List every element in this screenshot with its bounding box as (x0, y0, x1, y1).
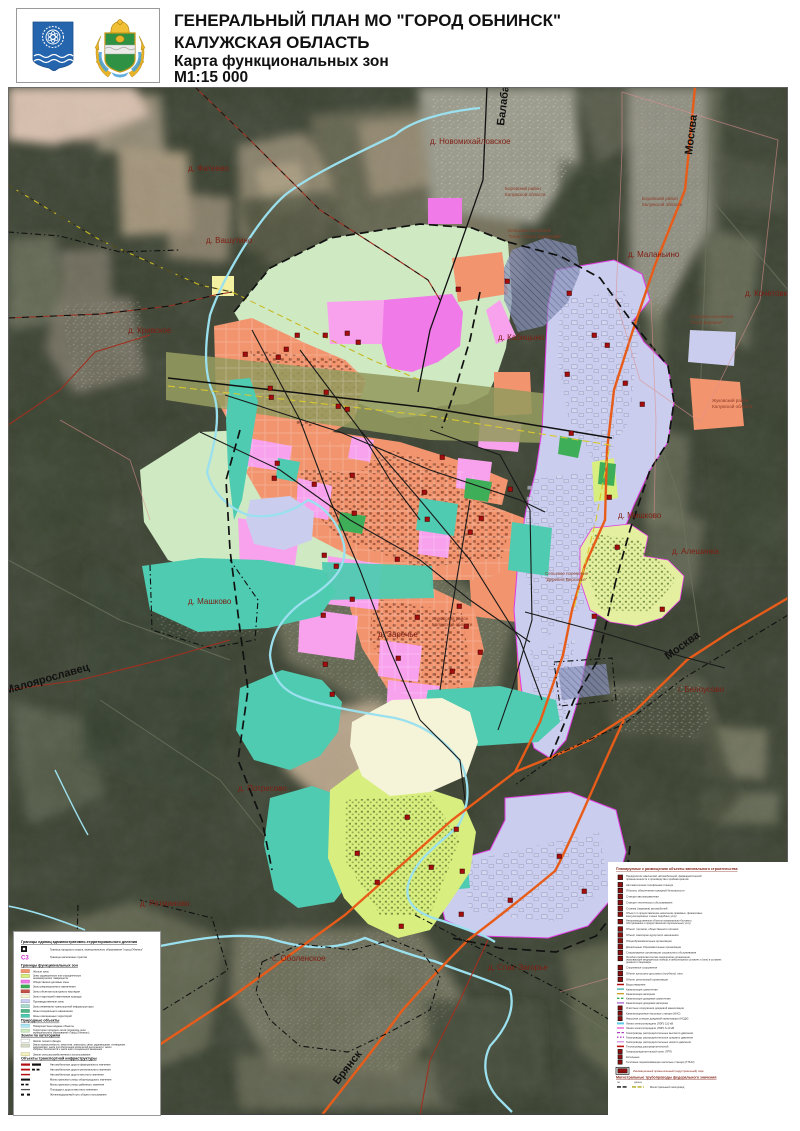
svg-text:Границы функциональных зон: Границы функциональных зон (21, 964, 78, 968)
svg-text:Объект культурно-досугового (к: Объект культурно-досугового (клубного) т… (626, 972, 683, 976)
svg-text:Поверхностные водные объекты: Поверхностные водные объекты (33, 1024, 74, 1028)
svg-text:Очистные сооружения дождевой к: Очистные сооружения дождевой канализации (626, 1006, 684, 1010)
svg-text:Теплопровод распределительный: Теплопровод распределительный (626, 1045, 669, 1049)
svg-text:Границы населенных пунктов: Границы населенных пунктов (50, 955, 87, 959)
svg-text:Канализация напорная: Канализация напорная (626, 992, 655, 996)
svg-text:д. Алешинка: д. Алешинка (672, 547, 720, 556)
svg-text:Жуковский район: Жуковский район (712, 397, 749, 403)
svg-text:Котельные: Котельные (626, 1055, 640, 1059)
svg-text:Границы единиц административно: Границы единиц административно-территори… (21, 940, 137, 944)
svg-text:Жилые зоны: Жилые зоны (33, 969, 49, 973)
svg-text:данные: данные (634, 1082, 643, 1084)
svg-text:д. Кривское: д. Кривское (128, 326, 172, 335)
svg-text:некоммерческих товариществ: некоммерческих товариществ (33, 977, 69, 980)
svg-text:Боровский район: Боровский район (505, 185, 541, 191)
svg-text:д. Новомихайловское: д. Новомихайловское (430, 137, 511, 146)
svg-text:Зоны территорий памятников при: Зоны территорий памятников природы (33, 995, 82, 999)
svg-text:промышленности и производства: промышленности и производства стройматер… (626, 877, 689, 881)
svg-text:Линии электропередачи (ЛЭП) 11: Линии электропередачи (ЛЭП) 110 кВ (626, 1022, 673, 1026)
svg-text:"Село Ворсино": "Село Ворсино" (690, 320, 723, 325)
svg-text:Планируемые к размещению объек: Планируемые к размещению объекты капитал… (616, 867, 738, 871)
svg-text:Калужской области: Калужской области (505, 191, 546, 197)
svg-text:Объект религиозной организации: Объект религиозной организации (626, 977, 668, 981)
svg-text:Зоны озелененных территорий: Зоны озелененных территорий (33, 1014, 72, 1018)
svg-text:д. Машково: д. Машково (188, 597, 232, 606)
svg-text:Объект санаторно-курортного на: Объект санаторно-курортного назначения (626, 933, 679, 937)
svg-text:д. Заречье: д. Заречье (378, 630, 418, 639)
svg-text:Станция автозаправочная: Станция автозаправочная (626, 895, 659, 899)
svg-text:Граница городского округа, мун: Граница городского округа, муниципальног… (50, 948, 143, 952)
svg-text:Канализационные насосные станц: Канализационные насосные станции (КНС) (626, 1011, 681, 1015)
svg-text:Зоны рекреационного назначения: Зоны рекреационного назначения (33, 985, 76, 989)
svg-text:Автомобильные дороги региональ: Автомобильные дороги регионального значе… (50, 1068, 111, 1072)
svg-text:д. Фатеево: д. Фатеево (188, 164, 229, 173)
svg-text:Зоны инженерно-транспортной ин: Зоны инженерно-транспортной инфраструкту… (33, 1004, 94, 1008)
svg-text:Газопроводы распределительные: Газопроводы распределительные среднего д… (626, 1035, 693, 1039)
svg-text:с. Оболенское: с. Оболенское (272, 954, 326, 963)
svg-text:Автомобильные дороги федеральн: Автомобильные дороги федерального значен… (50, 1063, 111, 1067)
svg-text:Магистральные улицы районного: Магистральные улицы районного значения (50, 1083, 105, 1087)
svg-text:Дошкольные образовательные орг: Дошкольные образовательные организации (626, 945, 682, 949)
svg-text:обслуживания и предоставления: обслуживания и предоставления персональн… (626, 921, 691, 925)
svg-text:Железнодорожный путь общего по: Железнодорожный путь общего пользования (50, 1093, 107, 1097)
svg-text:Газораспределительный пункт (Г: Газораспределительный пункт (ГРП) (626, 1050, 672, 1054)
svg-text:Общеобразовательные организаци: Общеобразовательные организации (626, 939, 672, 943)
svg-text:Калужской области: Калужской области (712, 403, 753, 409)
svg-text:Объект торговли, общественного: Объект торговли, общественного питания (626, 927, 679, 931)
svg-text:Калужской области: Калужской области (432, 621, 473, 627)
svg-text:д. Вашутино: д. Вашутино (206, 236, 253, 245)
svg-text:Канализация дождевая напорная: Канализация дождевая напорная (626, 1001, 668, 1005)
svg-text:д. Потресово: д. Потресово (238, 784, 287, 793)
svg-text:Станция технического обслужива: Станция технического обслуживания (626, 901, 673, 905)
svg-text:Жуковский район: Жуковский район (432, 615, 469, 621)
svg-text:д. Спас-Загорье: д. Спас-Загорье (488, 963, 548, 972)
svg-text:обороны, безопасности и земли: обороны, безопасности и земли иного спец… (33, 1049, 103, 1051)
svg-text:консультационных и иных подобн: консультационных и иных подобных услуг (626, 914, 677, 918)
svg-text:Сельское поселение: Сельское поселение (690, 314, 734, 319)
svg-text:г. Белоусово: г. Белоусово (678, 685, 725, 694)
svg-text:Общественно-деловые зоны: Общественно-деловые зоны (33, 980, 69, 984)
svg-text:д. Кабицыно: д. Кабицыно (498, 333, 545, 342)
svg-text:Спортивные сооружения: Спортивные сооружения (626, 966, 658, 970)
svg-text:Газопроводы распределительные: Газопроводы распределительные низкого да… (626, 1040, 692, 1044)
svg-text:Сельское поселение: Сельское поселение (545, 571, 589, 576)
svg-text:Объекты транспортной инфрастру: Объекты транспортной инфраструктуры (21, 1057, 97, 1061)
svg-text:Зоны специального назначения: Зоны специального назначения (33, 1009, 73, 1013)
svg-text:Сельское поселение: Сельское поселение (508, 228, 552, 233)
svg-text:д. Ратманово: д. Ратманово (140, 899, 190, 908)
svg-text:Природные объекты: Природные объекты (21, 1019, 59, 1023)
svg-text:Земли лесного фонда: Земли лесного фонда (33, 1039, 61, 1043)
svg-text:Зоны объектов культурного насл: Зоны объектов культурного наследия (33, 990, 80, 994)
svg-text:"Деревня Верховье": "Деревня Верховье" (545, 577, 588, 582)
svg-text:Насосная станция дождевой кана: Насосная станция дождевой канализации (Н… (626, 1017, 689, 1021)
svg-text:Земли по категориям: Земли по категориям (21, 1034, 60, 1038)
svg-text:Боровский район: Боровский район (642, 195, 678, 201)
svg-text:Объекты обеспечения пожарной б: Объекты обеспечения пожарной безопасност… (626, 889, 685, 893)
svg-text:"Село Совхоз Боровский": "Село Совхоз Боровский" (508, 233, 562, 239)
svg-text:д. Мишково: д. Мишково (618, 511, 662, 520)
svg-text:Магистральные улицы общегородс: Магистральные улицы общегородского значе… (50, 1078, 112, 1082)
svg-text:Водоотведение: Водоотведение (626, 983, 646, 987)
svg-text:Площади и дороги местного знач: Площади и дороги местного значения (50, 1088, 98, 1092)
svg-text:С3: С3 (21, 956, 29, 962)
svg-text:Газопроводы распределительные: Газопроводы распределительные высокого д… (626, 1031, 694, 1035)
svg-text:Калужской области: Калужской области (642, 201, 683, 207)
svg-text:д. Кочетовка: д. Кочетовка (745, 289, 788, 298)
svg-text:Магистральные трубопроводы фед: Магистральные трубопроводы федерального … (616, 1075, 716, 1079)
svg-text:Автомобильные дороги местного: Автомобильные дороги местного значения (50, 1073, 104, 1077)
svg-text:д. Маланьино: д. Маланьино (628, 250, 680, 259)
svg-text:дневного стационара: дневного стационара (626, 961, 651, 964)
svg-text:Производственные зоны: Производственные зоны (33, 999, 64, 1003)
svg-text:Тепловые перекачивающие насосн: Тепловые перекачивающие насосные станции… (626, 1060, 695, 1064)
svg-text:Стационарные организации социа: Стационарные организации социального обс… (626, 951, 697, 955)
svg-text:Магистральный газопровод: Магистральный газопровод (650, 1085, 685, 1089)
svg-text:Стоянка (парковка) автомобилей: Стоянка (парковка) автомобилей (626, 906, 668, 910)
svg-text:Канализация самотечная: Канализация самотечная (626, 987, 658, 991)
svg-text:Инновационный промышленный (ин: Инновационный промышленный (индустриальн… (633, 1069, 704, 1073)
svg-text:Канализация дождевая самотечна: Канализация дождевая самотечная (626, 997, 671, 1001)
svg-text:Линии электропередачи (ЛЭП) 6-: Линии электропередачи (ЛЭП) 6-10 кВ (626, 1026, 674, 1030)
svg-text:газ: газ (617, 1082, 620, 1084)
svg-text:Автоматическая телефонная стан: Автоматическая телефонная станция (626, 883, 674, 887)
